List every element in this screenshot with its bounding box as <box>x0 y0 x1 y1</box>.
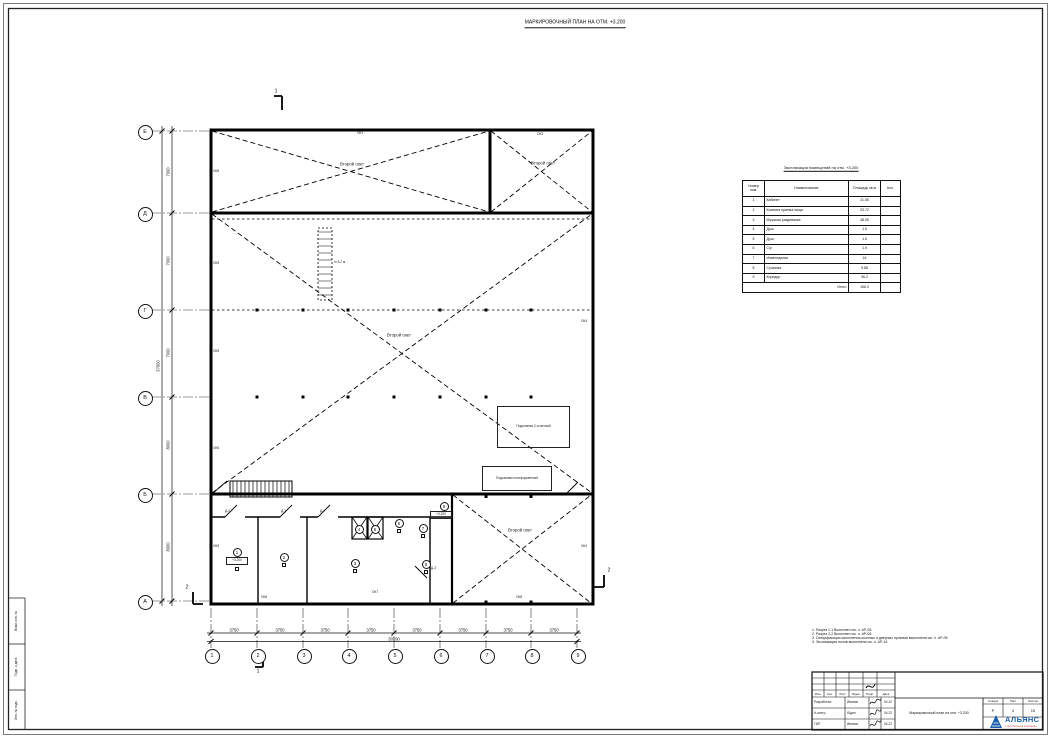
cell-qty <box>881 235 901 245</box>
tb-header-list: Лист <box>839 692 846 696</box>
dim-col-2: 3750 <box>275 628 284 633</box>
second-light-label-center: Второй свет <box>386 334 413 339</box>
sheet-title: МАРКИРОВОЧНЫЙ ПЛАН НА ОТМ. +3.200 <box>525 20 626 28</box>
opening-label-ok5-5: ОК5 <box>213 545 219 549</box>
cell-no: 4 <box>743 225 765 235</box>
axis-col-8: 8 <box>525 649 540 664</box>
opening-label-ok5-2: ОК5 <box>213 262 219 266</box>
note-line: 4. Экспликация полов выполнена см. л. АР… <box>812 641 948 645</box>
drawing-sheet: МАРКИРОВОЧНЫЙ ПЛАН НА ОТМ. +3.200 Е Д Г … <box>0 0 1051 738</box>
opening-label-ok6: ОК6 <box>261 596 267 600</box>
dim-row-5: 8000 <box>166 542 171 551</box>
cell-qty <box>881 244 901 254</box>
section-mark-1-top: 1 <box>275 89 278 95</box>
section-mark-2-left: 2 <box>186 585 189 591</box>
filing-cell-inv: Инв. № подл. <box>15 700 19 720</box>
cell-qty <box>881 264 901 274</box>
tb-date-3: 04.22 <box>884 723 892 727</box>
col-header-area: Площадь кв.м <box>849 181 881 197</box>
cell-qty <box>881 225 901 235</box>
tb-date-1: 04.22 <box>884 701 892 705</box>
lift-platform-box: Подъемник платформенный <box>482 466 552 491</box>
room-tag-3: 3 <box>351 559 360 568</box>
cell-area: 21.55 <box>849 197 881 207</box>
tb-sheet-label: Лист <box>1010 699 1017 703</box>
tb-sheet-value: 4 <box>1012 708 1014 712</box>
opening-label-d3: Д-3 <box>431 567 436 571</box>
dim-col-4: 3750 <box>366 628 375 633</box>
axis-row-e: Е <box>138 125 153 140</box>
cell-qty <box>881 283 901 293</box>
opening-label-ok5-3: ОК5 <box>213 350 219 354</box>
axis-row-g: Г <box>138 304 153 319</box>
opening-label-ok5-1: ОК5 <box>213 170 219 174</box>
cell-no: 8 <box>743 264 765 274</box>
opening-label-ok8: ОК8 <box>516 596 522 600</box>
cell-area: 48.05 <box>849 216 881 226</box>
opening-edge-dashed <box>212 219 592 310</box>
dim-row-4: 8000 <box>166 440 171 449</box>
explication-header-row: Номер пом. Наименование Площадь кв.м Кол… <box>743 181 901 197</box>
tb-header-kol: Кол. <box>827 692 833 696</box>
table-row: 3Мужская раздевалка48.05 <box>743 216 901 226</box>
total-label: Итого <box>743 283 849 293</box>
room-area-square <box>353 569 357 573</box>
room-area-square <box>235 567 239 571</box>
opening-label-ok4-1: ОК4 <box>581 320 587 324</box>
cell-name: Кабинет <box>765 197 849 207</box>
cell-no: 9 <box>743 273 765 283</box>
tb-date-2: 04.22 <box>884 712 892 716</box>
axis-row-b: Б <box>138 488 153 503</box>
cell-name: Душ <box>765 225 849 235</box>
dim-col-total: 30000 <box>388 636 399 641</box>
cell-area: 23.72 <box>849 206 881 216</box>
filing-cell-vzam: Взам. инв. № <box>15 611 19 631</box>
dim-col-3: 3750 <box>320 628 329 633</box>
notes-block: 1. Разрез 1-1 Выполнен см. л. АР-05. 2. … <box>812 629 948 644</box>
cell-area: 16 <box>849 254 881 264</box>
cell-name: Комната приема пищи <box>765 206 849 216</box>
axis-col-2: 2 <box>251 649 266 664</box>
col-header-room-no: Номер пом. <box>743 181 765 197</box>
col-header-qty: Кол. <box>881 181 901 197</box>
room-tag-1: 1 <box>233 548 242 557</box>
cell-qty <box>881 254 901 264</box>
col-header-name: Наименование <box>765 181 849 197</box>
cell-area: 1.5 <box>849 235 881 245</box>
room-area-square <box>421 534 425 538</box>
filing-cell-podp: Подп. и дата <box>15 658 19 677</box>
logo-company-subtitle: строительная компания <box>1005 725 1037 728</box>
dim-row-1: 7000 <box>166 167 171 176</box>
section-cut-marks <box>193 96 604 667</box>
elevation-mark-corridor: +3.200 <box>430 511 452 519</box>
room-tag-9: 9 <box>440 502 449 511</box>
axis-col-7: 7 <box>480 649 495 664</box>
plan-walls <box>211 130 593 604</box>
dim-row-2: 7000 <box>166 256 171 265</box>
tb-header-podp: Подп. <box>866 692 874 696</box>
cell-area: 1.5 <box>849 225 881 235</box>
opening-label-ok7: ОК7 <box>372 591 378 595</box>
ladder-height-note: h=3.2 м <box>334 261 345 265</box>
dim-col-1: 3750 <box>229 628 238 633</box>
cell-name: Сушилка <box>765 264 849 274</box>
axis-col-4: 4 <box>342 649 357 664</box>
room-area-square <box>424 570 428 574</box>
table-row: 6С/у1.9 <box>743 244 901 254</box>
cell-no: 3 <box>743 216 765 226</box>
cell-name: Душ <box>765 235 849 245</box>
ladder <box>318 228 332 300</box>
axis-col-6: 6 <box>434 649 449 664</box>
second-light-label-top-right: Второй свет <box>530 162 557 167</box>
explication-table: Номер пом. Наименование Площадь кв.м Кол… <box>742 180 901 293</box>
axis-row-v: В <box>138 391 153 406</box>
tb-name-3: Иванов <box>847 723 858 727</box>
dimension-ticks <box>160 129 580 645</box>
opening-label-ok4-2: ОК4 <box>581 545 587 549</box>
table-row: 7Инвентарная16 <box>743 254 901 264</box>
cell-qty <box>881 197 901 207</box>
cell-name: Инвентарная <box>765 254 849 264</box>
tb-stage-value: Р <box>992 708 995 712</box>
tb-header-izm: Изм. <box>815 692 821 696</box>
dim-row-3: 7000 <box>166 348 171 357</box>
room-tag-7: 7 <box>419 524 428 533</box>
second-light-label-top-left: Второй свет <box>339 163 366 168</box>
tb-doc-title: Маркировочный план на отм. +3.200 <box>898 712 980 716</box>
table-row: 8Сушилка5.88 <box>743 264 901 274</box>
tb-sheets-label: Листов <box>1028 699 1038 703</box>
cell-name: С/у <box>765 244 849 254</box>
room-tag-5: 5 <box>371 525 380 534</box>
axis-row-a: А <box>138 595 153 610</box>
dim-col-7: 3750 <box>503 628 512 633</box>
room-tag-8: 8 <box>422 560 431 569</box>
axis-col-5: 5 <box>388 649 403 664</box>
opening-label-ok5-4: ОК5 <box>213 447 219 451</box>
axis-col-1: 1 <box>205 649 220 664</box>
explication-title: Экспликация помещений на отм. +3.200 <box>784 166 859 172</box>
tb-role-3: ГИП <box>814 723 820 727</box>
room-tag-2: 2 <box>280 553 289 562</box>
tb-header-ndok: №док. <box>852 692 861 696</box>
axis-extension-lines <box>151 131 577 648</box>
dim-col-8: 3750 <box>549 628 558 633</box>
tb-stage-label: Стадия <box>988 699 998 703</box>
cell-qty <box>881 273 901 283</box>
tb-role-2: Н.контр. <box>814 712 826 716</box>
table-total-row: Итого 156.3 <box>743 283 901 293</box>
lift-two-post-box: Подъемник 2-стоечный <box>497 406 570 448</box>
room-area-square <box>397 529 401 533</box>
cell-name: Мужская раздевалка <box>765 216 849 226</box>
cell-area: 5.88 <box>849 264 881 274</box>
table-row: 9Коридор36.2 <box>743 273 901 283</box>
table-row: 5Душ1.5 <box>743 235 901 245</box>
opening-label-ok1: ОК1 <box>357 132 363 136</box>
cell-no: 7 <box>743 254 765 264</box>
axis-col-3: 3 <box>297 649 312 664</box>
total-value: 156.3 <box>849 283 881 293</box>
axis-col-9: 9 <box>571 649 586 664</box>
axis-row-d: Д <box>138 207 153 222</box>
section-mark-2-right: 2 <box>608 568 611 574</box>
table-row: 1Кабинет21.55 <box>743 197 901 207</box>
opening-label-d1: Д-1 <box>281 510 286 514</box>
cell-qty <box>881 216 901 226</box>
room-area-square <box>282 563 286 567</box>
tb-header-data: Дата <box>883 692 890 696</box>
cell-no: 2 <box>743 206 765 216</box>
table-row: 4Душ1.5 <box>743 225 901 235</box>
cell-qty <box>881 206 901 216</box>
cell-no: 6 <box>743 244 765 254</box>
tb-name-1: Иванов <box>847 701 858 705</box>
section-mark-1-bottom: 1 <box>257 669 260 675</box>
dim-col-6: 3750 <box>458 628 467 633</box>
tb-role-1: Разработал <box>814 701 831 705</box>
dim-col-5: 3750 <box>412 628 421 633</box>
cell-area: 1.9 <box>849 244 881 254</box>
opening-label-ok3: ОК3 <box>537 133 543 137</box>
tb-name-2: Юдин <box>847 712 855 716</box>
elevation-mark-room: +3.200 <box>226 557 248 565</box>
dimension-lines <box>162 126 581 642</box>
dim-row-total: 37000 <box>156 360 161 371</box>
second-light-crosses <box>212 131 592 603</box>
cell-area: 36.2 <box>849 273 881 283</box>
logo-company-name: АЛЬЯНС <box>1005 715 1040 724</box>
table-row: 2Комната приема пищи23.72 <box>743 206 901 216</box>
opening-label-d7: Д-7 <box>320 510 325 514</box>
cell-no: 1 <box>743 197 765 207</box>
room-tag-4: 4 <box>355 525 364 534</box>
second-light-label-bottom: Второй свет <box>507 529 534 534</box>
tb-sheets-value: 15 <box>1031 708 1035 712</box>
cell-name: Коридор <box>765 273 849 283</box>
opening-label-d2: Д-2 <box>225 510 230 514</box>
cell-no: 5 <box>743 235 765 245</box>
room-tag-6: 6 <box>395 519 404 528</box>
